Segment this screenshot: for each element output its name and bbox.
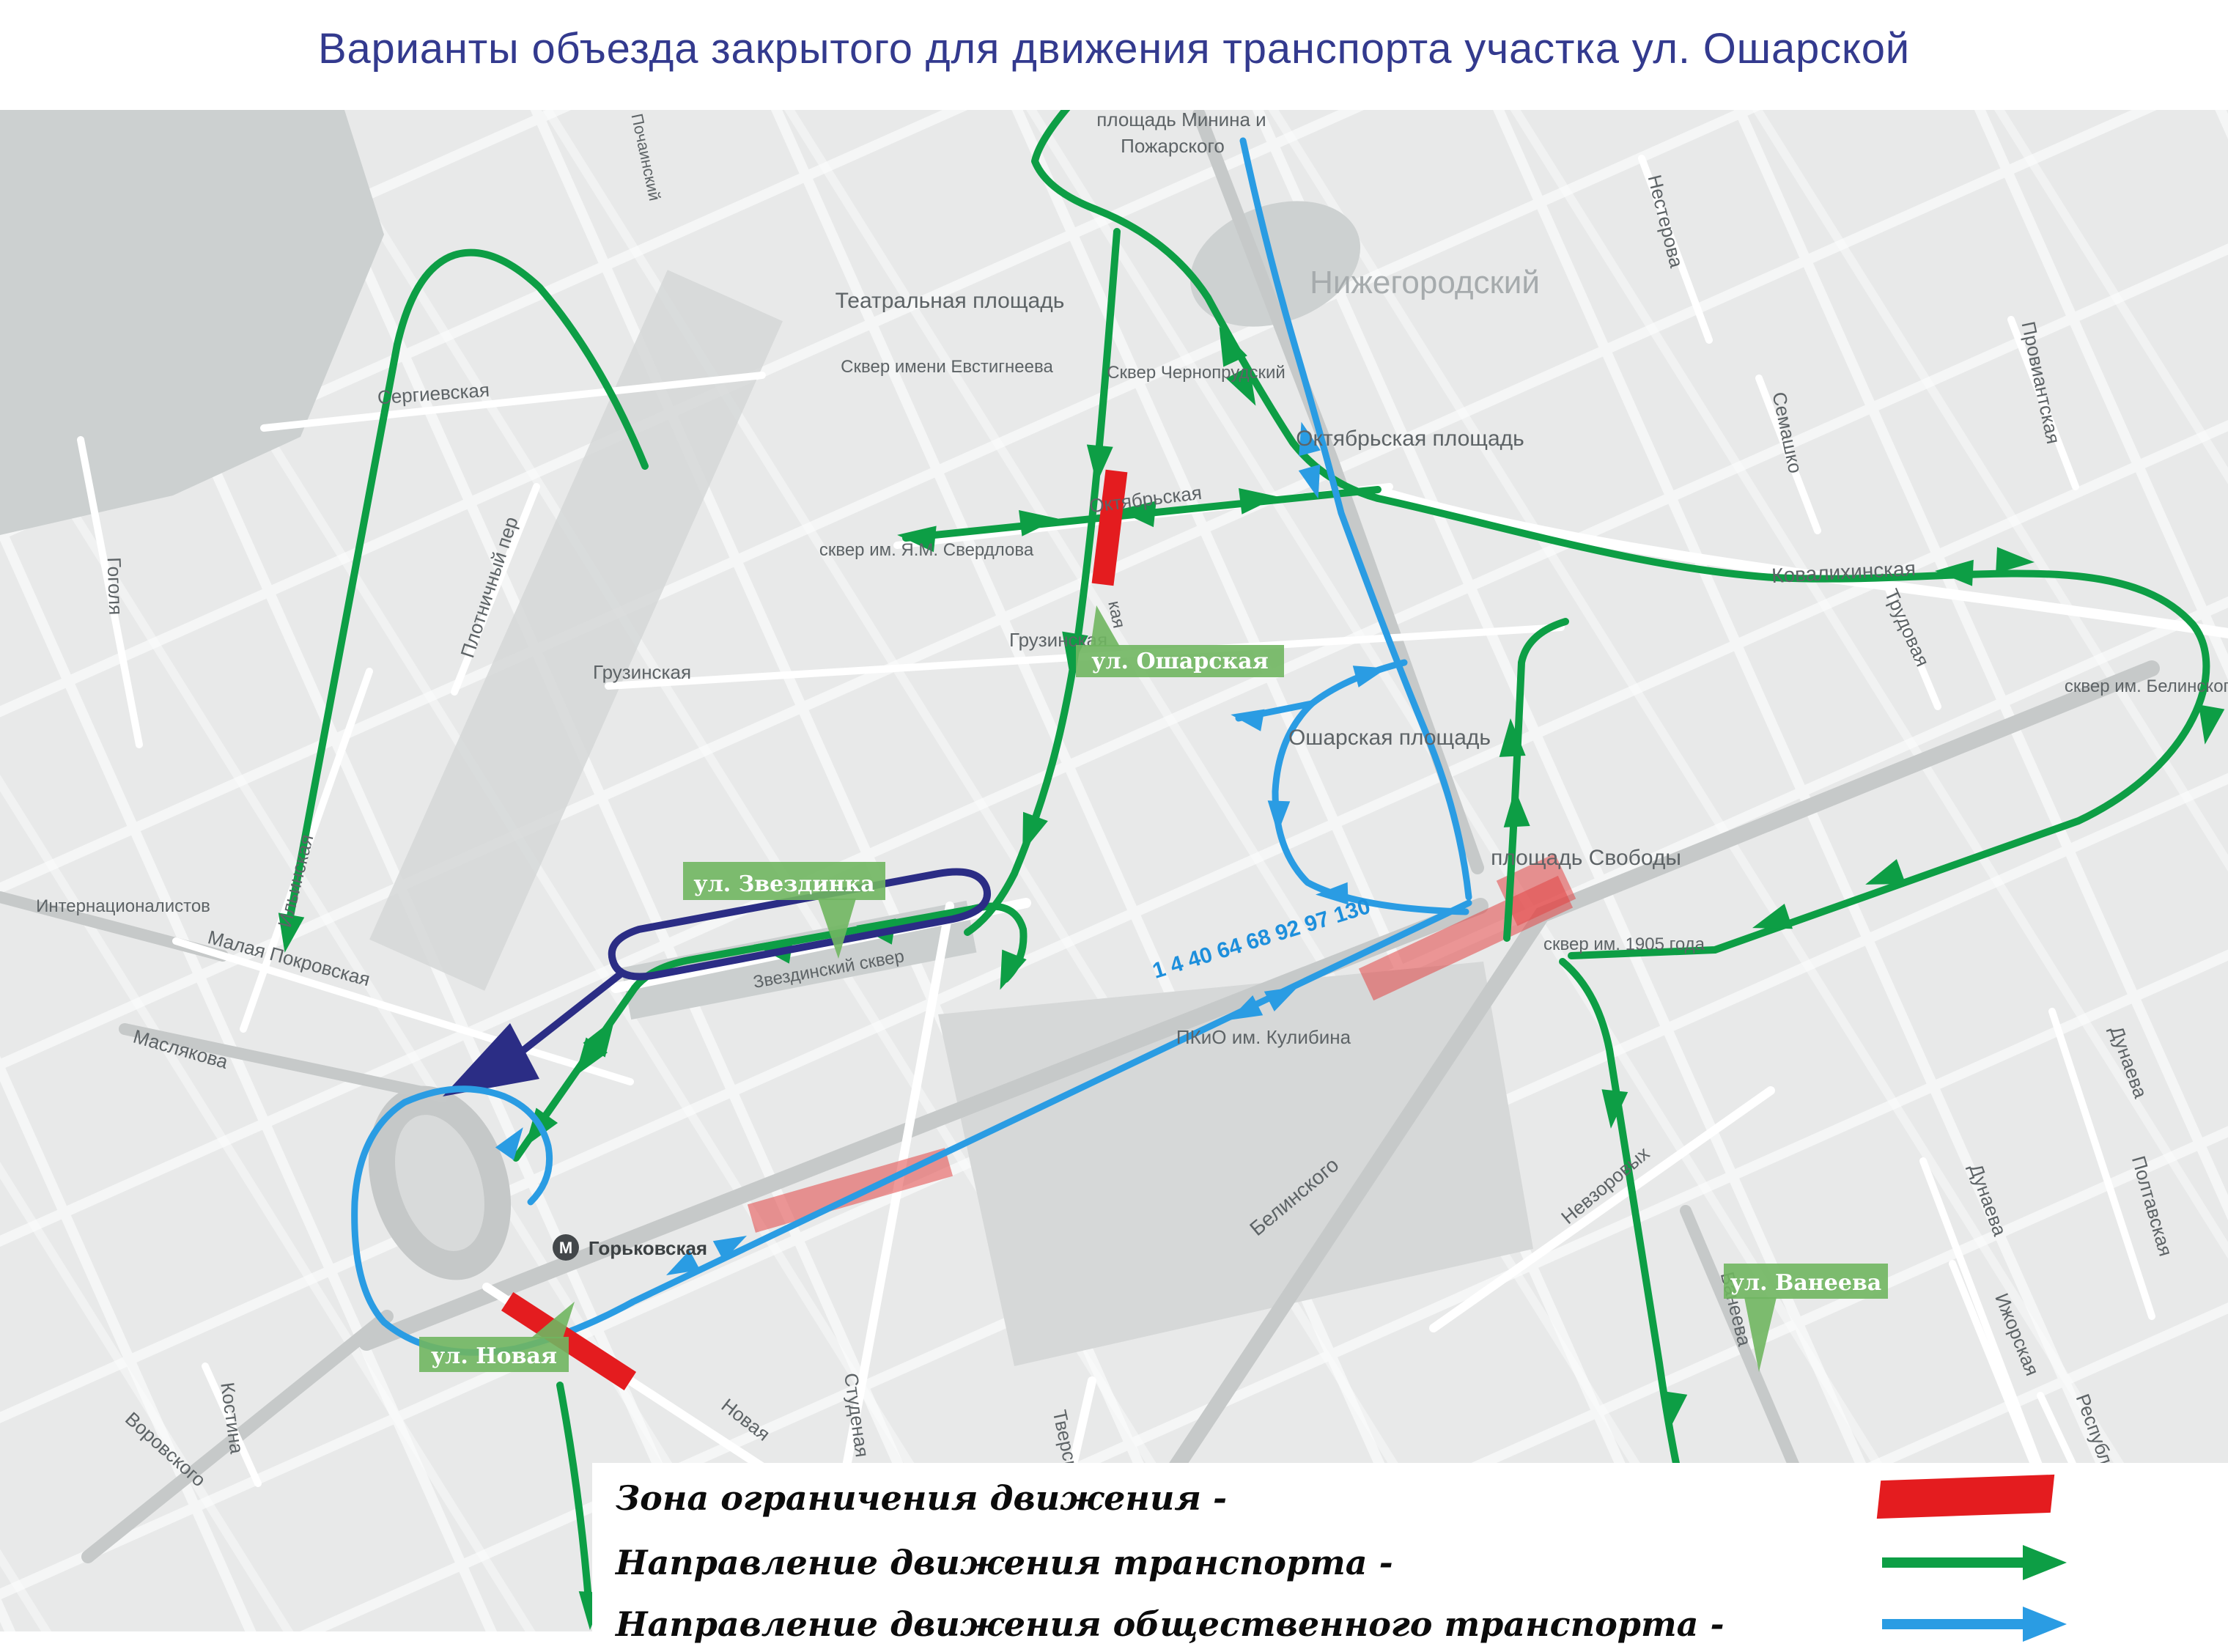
- legend-label-public-transport: Направление движения общественного транс…: [616, 1604, 1725, 1644]
- legend-label-restriction: Зона ограничения движения -: [616, 1478, 1227, 1518]
- metro-station-gorkovskaya: М: [553, 1234, 579, 1261]
- restriction-zone-swatch: [1879, 1478, 2070, 1519]
- street-label: сквер им. 1905 года: [1543, 934, 1705, 954]
- street-label: сквер им. Белинского: [2065, 676, 2228, 696]
- street-label: Пожарского: [1121, 135, 1225, 157]
- metro-icon-letter: М: [559, 1239, 572, 1257]
- legend-row-restriction: Зона ограничения движения -: [616, 1472, 1227, 1524]
- badge-label: ул. Новая: [431, 1343, 557, 1369]
- street-label: Сквер Чернопрудский: [1107, 363, 1285, 383]
- street-label: Нижегородский: [1310, 265, 1540, 300]
- badge-label: ул. Ванеева: [1730, 1270, 1881, 1296]
- blue-arrow-swatch: [1879, 1604, 2070, 1645]
- page: Варианты объезда закрытого для движения …: [0, 0, 2228, 1631]
- street-label: площадь Свободы: [1491, 846, 1681, 870]
- street-label: ПКиО им. Кулибина: [1176, 1026, 1351, 1048]
- street-label: Октябрьская площадь: [1296, 427, 1524, 451]
- street-label: Грузинская: [593, 661, 691, 683]
- legend-label-traffic: Направление движения транспорта -: [616, 1543, 1393, 1582]
- street-label: Гоголя: [103, 557, 128, 616]
- street-label: Интернационалистов: [36, 896, 210, 916]
- badge-label: ул. Звездинка: [693, 871, 874, 897]
- legend-row-public-transport: Направление движения общественного транс…: [616, 1598, 1725, 1651]
- detour-map: М Почаинскийплощадь Минина иПожарскогоНи…: [0, 0, 2228, 1631]
- street-label: Ошарская площадь: [1288, 726, 1491, 750]
- street-label: Сквер имени Евстигнеева: [841, 357, 1053, 377]
- street-label: Театральная площадь: [835, 289, 1065, 313]
- badge-label: ул. Ошарская: [1091, 649, 1269, 674]
- street-label: Горьковская: [589, 1237, 707, 1259]
- green-arrow-swatch: [1879, 1542, 2070, 1583]
- legend: Зона ограничения движения - Направление …: [592, 1463, 2228, 1631]
- legend-row-traffic: Направление движения транспорта -: [616, 1536, 1393, 1589]
- street-label: сквер им. Я.М. Свердлова: [819, 540, 1034, 560]
- street-label: площадь Минина и: [1096, 108, 1266, 130]
